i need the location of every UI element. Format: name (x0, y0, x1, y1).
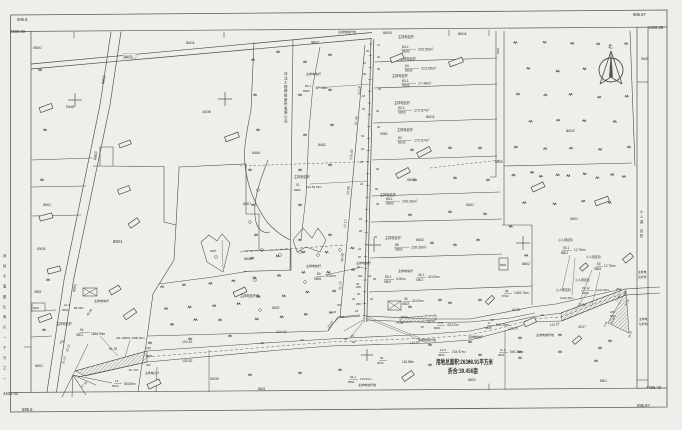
svg-text:0500: 0500 (210, 376, 220, 381)
svg-text:275: 275 (438, 321, 443, 325)
svg-text:信杆地: 信杆地 (638, 275, 647, 279)
svg-text:1222.38m: 1222.38m (596, 288, 610, 292)
svg-text:主排电信杆地: 主排电信杆地 (536, 332, 554, 337)
svg-text:18: 18 (362, 94, 366, 98)
svg-text:8982: 8982 (294, 188, 301, 192)
svg-text:264: 264 (616, 287, 621, 291)
svg-text:8601: 8601 (600, 379, 607, 383)
svg-text:9601: 9601 (76, 333, 83, 337)
svg-text:17.17: 17.17 (343, 219, 348, 228)
svg-text:18: 18 (361, 147, 365, 151)
svg-text:主排电信杆: 主排电信杆 (306, 71, 321, 76)
svg-text:8602: 8602 (416, 238, 424, 242)
svg-text:8307: 8307 (243, 202, 251, 206)
svg-text:0601: 0601 (570, 217, 578, 221)
svg-text:57.45: 57.45 (354, 116, 359, 125)
svg-text:9603: 9603 (402, 84, 410, 88)
svg-text:4406.89: 4406.89 (648, 25, 664, 30)
svg-text:172.57m²: 172.57m² (414, 139, 430, 143)
svg-text:20: 20 (357, 265, 361, 269)
svg-text:96: 96 (380, 356, 384, 360)
svg-text:02: 02 (377, 55, 381, 59)
svg-text:8601: 8601 (561, 251, 568, 255)
svg-text:43.37m²: 43.37m² (447, 323, 459, 327)
svg-text:1605: 1605 (202, 109, 212, 114)
svg-text:109.26m²: 109.26m² (402, 200, 418, 204)
svg-text:公: 公 (284, 114, 288, 119)
svg-text:04: 04 (368, 274, 372, 278)
svg-text:253: 253 (337, 303, 342, 307)
svg-text:小人墓区阶: 小人墓区阶 (558, 237, 573, 242)
svg-text:信杆地: 信杆地 (639, 322, 648, 326)
svg-text:8602: 8602 (522, 262, 530, 266)
svg-text:1036.74m²: 1036.74m² (514, 291, 529, 295)
svg-text:245: 245 (610, 310, 615, 314)
svg-text:8602: 8602 (272, 306, 280, 310)
svg-text:75.71: 75.71 (396, 321, 404, 325)
svg-text:有: 有 (284, 105, 288, 110)
svg-text:83-1: 83-1 (385, 275, 392, 279)
svg-text:9904: 9904 (33, 306, 39, 310)
svg-text:8482: 8482 (318, 143, 326, 147)
svg-text:0508: 0508 (34, 290, 41, 294)
svg-text:21.72: 21.72 (338, 281, 343, 290)
svg-text:主排电信杆: 主排电信杆 (145, 371, 159, 375)
svg-text:8601: 8601 (610, 314, 616, 318)
svg-text:12-1: 12-1 (64, 303, 70, 307)
svg-text:84-1: 84-1 (402, 45, 409, 49)
svg-text:橡: 橡 (284, 88, 288, 93)
svg-text:12: 12 (363, 61, 367, 65)
svg-text:223.55m²: 223.55m² (421, 67, 437, 71)
svg-text:8603: 8603 (124, 55, 132, 59)
svg-text:北: 北 (608, 43, 613, 50)
svg-text:125.52: 125.52 (182, 359, 192, 363)
svg-text:22: 22 (360, 182, 364, 186)
svg-text:9606: 9606 (582, 291, 589, 295)
svg-text:.46: .46 (540, 313, 544, 317)
svg-text:主排电信杆: 主排电信杆 (356, 260, 371, 265)
svg-text:4406.43: 4406.43 (3, 391, 19, 396)
svg-text:9803: 9803 (386, 202, 394, 206)
svg-text:胶: 胶 (284, 93, 288, 98)
svg-text:96-1: 96-1 (350, 375, 356, 379)
svg-text:0508: 0508 (37, 247, 45, 251)
svg-text:主排电信杆地: 主排电信杆地 (418, 337, 436, 342)
svg-text:01: 01 (296, 183, 300, 187)
svg-text:t1: t1 (488, 321, 491, 325)
svg-text:595.5: 595.5 (22, 407, 33, 412)
svg-text:0548: 0548 (66, 105, 74, 109)
svg-text:223.55m²: 223.55m² (418, 48, 434, 52)
svg-text:1222.38m: 1222.38m (560, 296, 574, 300)
svg-text:0500: 0500 (33, 46, 41, 50)
svg-text:17.48m²: 17.48m² (418, 82, 432, 86)
svg-text:折合:39.456亩: 折合:39.456亩 (448, 366, 478, 375)
svg-text:595.97: 595.97 (633, 12, 646, 17)
svg-text:.23: .23 (350, 334, 354, 338)
svg-text:42.09m²: 42.09m² (412, 299, 424, 303)
svg-text:5.00m²: 5.00m² (396, 277, 406, 281)
svg-text:08: 08 (363, 72, 367, 76)
svg-text:0601: 0601 (466, 203, 474, 207)
svg-text:12.75m²: 12.75m² (604, 264, 616, 268)
svg-text:.45: .45 (420, 325, 424, 329)
svg-text:298: 298 (356, 302, 361, 306)
svg-text:9806: 9806 (594, 267, 601, 271)
svg-text:主排电信杆: 主排电信杆 (385, 235, 402, 240)
svg-text:82-1: 82-1 (398, 106, 405, 110)
svg-text:8702: 8702 (502, 294, 509, 298)
svg-text:8404: 8404 (112, 384, 119, 388)
svg-text:9603: 9603 (641, 57, 649, 61)
svg-text:小人墓区阶: 小人墓区阶 (575, 277, 590, 282)
svg-text:限: 限 (284, 110, 288, 115)
svg-text:0387: 0387 (210, 249, 217, 253)
svg-text:.08: .08 (490, 318, 494, 322)
svg-text:23: 23 (359, 217, 363, 221)
svg-text:84: 84 (405, 64, 409, 68)
svg-text:85: 85 (395, 243, 399, 247)
svg-text:0603: 0603 (398, 111, 406, 115)
svg-text:主排电: 主排电 (638, 270, 647, 274)
svg-text:08: 08 (505, 289, 509, 293)
svg-text:0982: 0982 (380, 132, 388, 136)
svg-text:94: 94 (80, 328, 84, 332)
svg-text:小人墓区阶: 小人墓区阶 (586, 254, 601, 259)
svg-text:主排电信杆: 主排电信杆 (294, 174, 311, 179)
svg-text:主排电信杆: 主排电信杆 (56, 321, 73, 326)
svg-text:52: 52 (361, 134, 365, 138)
svg-text:8601: 8601 (348, 380, 355, 384)
svg-text:549.26m²: 549.26m² (496, 323, 509, 327)
svg-text:0802: 0802 (395, 248, 403, 252)
svg-text:主排电信杆: 主排电信杆 (306, 263, 321, 268)
svg-text:23.98: 23.98 (346, 186, 351, 195)
svg-text:12.75m²: 12.75m² (574, 248, 586, 252)
svg-text:30: 30 (358, 255, 362, 259)
svg-text:50: 50 (597, 262, 601, 266)
svg-text:04: 04 (352, 340, 356, 344)
svg-text:.08: .08 (260, 341, 264, 345)
svg-text:8601: 8601 (496, 48, 500, 55)
svg-text:(94-1)8601 1896.90m: (94-1)8601 1896.90m (116, 336, 145, 340)
svg-text:9602: 9602 (311, 41, 319, 45)
svg-text:4486.43: 4486.43 (646, 385, 662, 390)
svg-text:.45: .45 (300, 338, 304, 342)
svg-text:河: 河 (284, 71, 288, 76)
svg-text:8102: 8102 (377, 361, 384, 365)
svg-text:234.97m²: 234.97m² (452, 350, 465, 354)
svg-text:9806: 9806 (314, 277, 321, 281)
svg-text:08: 08 (344, 337, 348, 341)
svg-text:8601: 8601 (113, 239, 123, 244)
svg-text:75.77: 75.77 (427, 320, 435, 324)
svg-text:主排电信杆地: 主排电信杆地 (338, 29, 356, 34)
svg-text:04: 04 (355, 309, 359, 313)
svg-text:0402: 0402 (402, 302, 409, 306)
svg-text:50-1: 50-1 (563, 246, 570, 250)
svg-text:27: 27 (377, 43, 381, 47)
svg-text:194.53.53m: 194.53.53m (306, 185, 322, 189)
svg-text:8102: 8102 (398, 141, 406, 145)
svg-text:02: 02 (374, 235, 378, 239)
svg-text:主排电信杆: 主排电信杆 (397, 127, 414, 132)
svg-text:09-12: 09-12 (582, 286, 590, 290)
svg-text:1896.90m: 1896.90m (91, 332, 106, 336)
svg-text:85.65m: 85.65m (74, 306, 85, 310)
svg-text:09: 09 (377, 67, 381, 71)
svg-text:主排电信杆: 主排电信杆 (398, 34, 415, 39)
svg-text:09: 09 (375, 187, 379, 191)
svg-text:13: 13 (115, 379, 119, 383)
svg-text:595.5: 595.5 (17, 17, 28, 22)
svg-text:28: 28 (376, 202, 380, 206)
svg-text:82: 82 (398, 136, 402, 140)
svg-text:8602: 8602 (566, 128, 576, 133)
svg-text:23: 23 (362, 107, 366, 111)
svg-text:8602: 8602 (405, 69, 413, 73)
svg-text:42.09m²: 42.09m² (428, 275, 440, 279)
svg-text:09: 09 (366, 49, 370, 53)
svg-text:8601: 8601 (426, 114, 436, 119)
svg-text:主排电信杆: 主排电信杆 (394, 100, 411, 105)
svg-text:0601: 0601 (498, 353, 505, 357)
svg-text:t1-1: t1-1 (500, 348, 506, 352)
svg-text:8601: 8601 (258, 387, 266, 391)
svg-text:9603: 9603 (495, 160, 503, 164)
svg-text:8603: 8603 (402, 50, 410, 54)
svg-text:主排电信杆: 主排电信杆 (398, 268, 413, 273)
svg-text:8382: 8382 (500, 263, 507, 267)
svg-text:85-1: 85-1 (386, 197, 393, 201)
svg-text:8601: 8601 (35, 364, 43, 368)
svg-text:09: 09 (373, 277, 377, 281)
svg-text:主排电信杆: 主排电信杆 (94, 298, 109, 303)
svg-text:.09 .223: .09 .223 (128, 368, 139, 372)
svg-text:9806: 9806 (485, 326, 492, 330)
svg-text:小人墓区阶: 小人墓区阶 (556, 287, 571, 292)
svg-text:8603: 8603 (401, 315, 408, 319)
svg-text:238: 238 (146, 346, 151, 350)
svg-text:26: 26 (376, 167, 380, 171)
svg-text:主排电: 主排电 (639, 317, 648, 321)
svg-text:8601: 8601 (43, 203, 51, 207)
svg-text:292: 292 (146, 363, 151, 367)
svg-text:83: 83 (317, 272, 321, 276)
svg-text:595.97: 595.97 (637, 403, 650, 408)
svg-text:83-1: 83-1 (305, 84, 311, 88)
svg-text:9803: 9803 (384, 280, 391, 284)
svg-text:931: 931 (358, 274, 363, 278)
svg-text:用地总面积:26303.91平方米: 用地总面积:26303.91平方米 (436, 357, 493, 366)
svg-text:0601: 0601 (416, 278, 423, 282)
svg-text:8982: 8982 (303, 89, 310, 93)
svg-text:12-5: 12-5 (440, 348, 446, 352)
svg-text:8601: 8601 (458, 31, 468, 36)
svg-text:26: 26 (377, 125, 381, 129)
svg-text:程: 程 (284, 84, 288, 89)
svg-text:44.33: 44.33 (512, 308, 520, 312)
svg-text:115.85m: 115.85m (402, 360, 415, 364)
svg-text:9601: 9601 (62, 308, 69, 312)
svg-text:48.49: 48.49 (340, 253, 345, 262)
svg-text:8603: 8603 (146, 354, 153, 358)
svg-text:20: 20 (357, 292, 361, 296)
svg-text:06-1: 06-1 (418, 273, 425, 277)
svg-text:04: 04 (370, 297, 374, 301)
svg-text:8601: 8601 (468, 378, 476, 382)
svg-text:298: 298 (356, 285, 361, 289)
svg-text:40: 40 (378, 87, 382, 91)
svg-text:40: 40 (376, 109, 380, 113)
svg-text:8601: 8601 (186, 40, 196, 45)
svg-text:124.42: 124.42 (182, 340, 192, 344)
svg-text:主排电信杆: 主排电信杆 (392, 73, 409, 78)
svg-text:45.37: 45.37 (578, 325, 586, 329)
svg-text:139.26m²: 139.26m² (411, 246, 427, 250)
svg-text:北: 北 (284, 75, 288, 80)
svg-text:115.81m: 115.81m (360, 377, 372, 381)
svg-text:24: 24 (358, 247, 362, 251)
svg-text:8484: 8484 (252, 151, 260, 155)
svg-text:8601: 8601 (434, 326, 441, 330)
svg-text:28: 28 (359, 229, 363, 233)
svg-text:0601: 0601 (438, 353, 445, 357)
svg-text:主排电信杆: 主排电信杆 (468, 334, 483, 339)
svg-text:8500: 8500 (383, 30, 393, 35)
svg-text:06: 06 (404, 297, 408, 301)
svg-text:份: 份 (284, 101, 288, 106)
svg-text:85.65m²: 85.65m² (124, 382, 136, 386)
svg-text:司: 司 (284, 118, 288, 123)
svg-text:83-1: 83-1 (402, 79, 409, 83)
svg-text:主排电信杆地: 主排电信杆地 (358, 382, 376, 387)
svg-text:79.34: 79.34 (578, 303, 586, 307)
svg-text:172.57m²: 172.57m² (414, 109, 430, 113)
svg-text:124.42: 124.42 (276, 330, 286, 334)
